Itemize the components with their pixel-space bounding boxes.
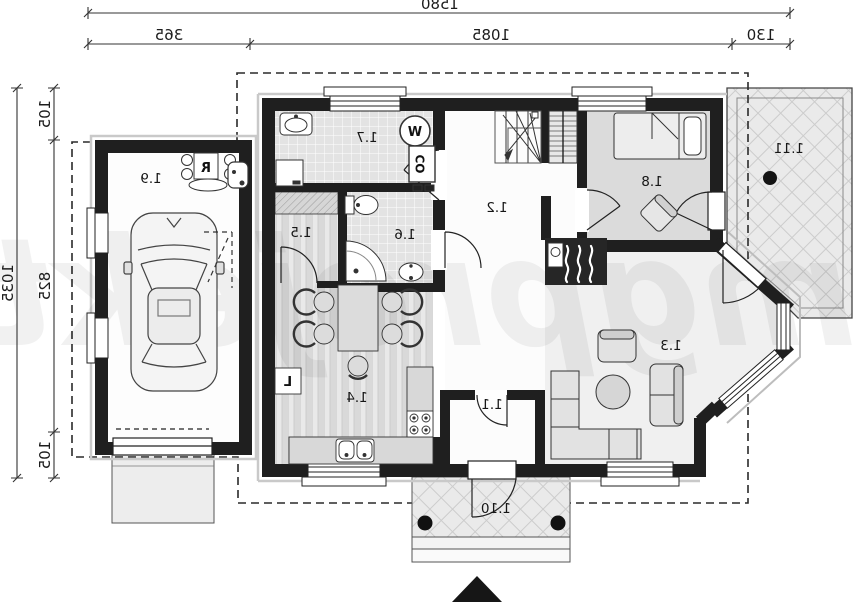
floor-plan-page: mgprojekt [0, 0, 860, 606]
room-label-garage: 1.9 [140, 171, 161, 187]
room-label-bathroom: 1.6 [394, 227, 415, 243]
room-label-porch: 1.10 [481, 501, 511, 517]
window-sill [572, 87, 652, 96]
porch-step-2 [412, 549, 570, 562]
armchair [598, 330, 636, 362]
bed [614, 113, 706, 159]
window [578, 96, 646, 111]
window-sill [601, 477, 679, 486]
svg-text:R: R [201, 161, 211, 176]
room-label-kitchen: 1.4 [346, 390, 367, 406]
window-sill [324, 87, 406, 96]
dining-table [338, 285, 378, 351]
room-label-bedroom: 1.8 [641, 174, 662, 190]
stove [407, 411, 433, 437]
utility-sink [280, 113, 312, 135]
svg-text:W: W [408, 125, 422, 140]
svg-text:L: L [284, 375, 292, 390]
fridge: L [275, 368, 301, 394]
window [607, 462, 673, 477]
window [330, 96, 400, 111]
window [95, 318, 108, 358]
dim-top-seg: 1085 [472, 26, 510, 44]
room-label-terrace: 1.11 [774, 141, 804, 157]
washbasin [399, 263, 423, 281]
bay-window-center [777, 303, 790, 350]
toilet [345, 196, 378, 215]
utility-cabinet [276, 160, 303, 186]
car [124, 213, 224, 391]
dim-top-seg: 365 [155, 26, 184, 44]
window [95, 213, 108, 253]
room-label-pantry: 1.5 [290, 225, 311, 241]
room-label-vestibule: 1.1 [481, 397, 502, 413]
porch-step-1 [412, 537, 570, 549]
floor-plan-drawing: mgprojekt [0, 0, 860, 606]
coffee-table [596, 375, 630, 409]
window-sill [302, 477, 386, 486]
dim-top-seg: 130 [747, 26, 776, 44]
room-label-utility: 1.7 [356, 130, 377, 146]
terrace-column [763, 171, 777, 185]
room-label-hall: 1.2 [486, 200, 507, 216]
north-arrow [452, 576, 502, 602]
loveseat [650, 364, 683, 426]
driveway-apron [112, 452, 214, 523]
window-sill [87, 313, 95, 363]
dim-top-total: 1580 [421, 0, 459, 13]
water-heater [228, 162, 248, 188]
porch-column [551, 516, 566, 531]
porch [412, 477, 570, 562]
dim-left-seg: 825 [36, 272, 54, 301]
window-sill [87, 208, 95, 258]
room-label-living: 1.3 [660, 338, 681, 354]
fireplace [545, 238, 607, 285]
porch-column [418, 516, 433, 531]
dim-left-seg: 105 [36, 441, 54, 470]
kitchen-sink [336, 439, 374, 462]
dim-left-total: 1035 [0, 264, 17, 302]
dining-chair [348, 356, 368, 379]
svg-text:CO: CO [414, 154, 428, 173]
wardrobe [549, 111, 577, 163]
washing-machine: W [400, 116, 430, 146]
dim-left-seg: 105 [36, 100, 54, 129]
